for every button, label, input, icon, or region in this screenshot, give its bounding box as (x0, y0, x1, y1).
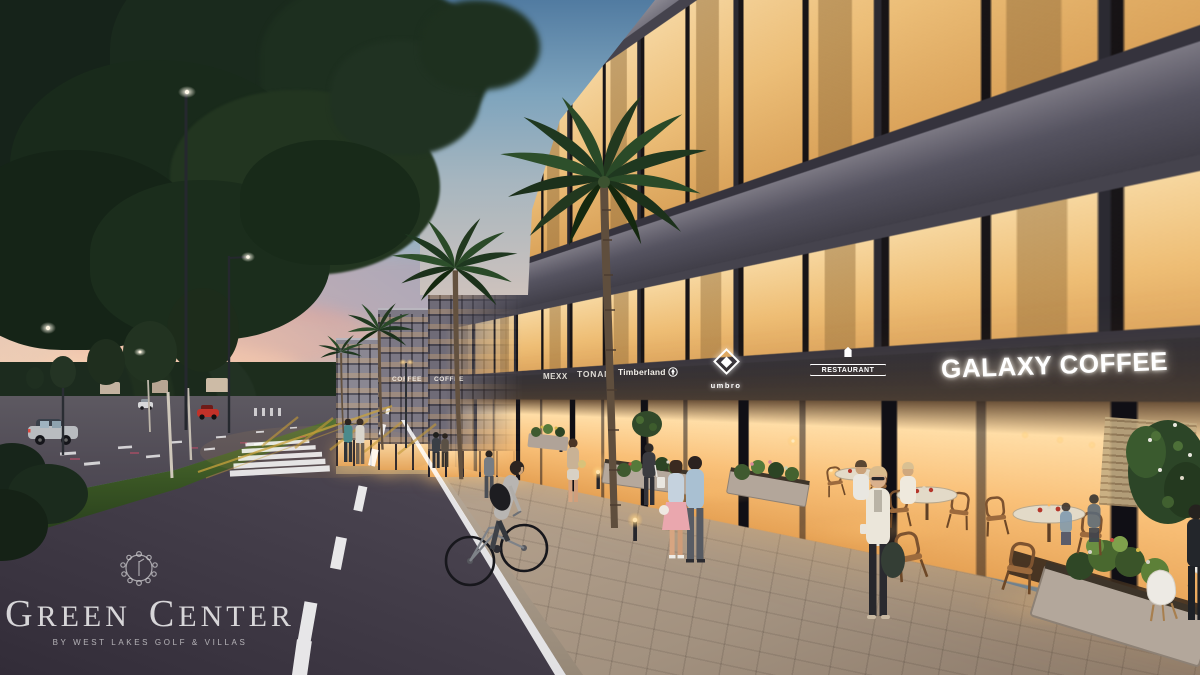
scene-overlay (0, 0, 1200, 675)
flowering-bush (1126, 420, 1200, 524)
silver-car (28, 419, 78, 445)
watermark-brand-right: CENTER (149, 592, 295, 636)
watermark-brand-left: GREEN (5, 592, 131, 636)
white-car (138, 399, 153, 410)
greencenter-emblem-icon (116, 550, 162, 592)
red-car (197, 405, 219, 420)
cafe-table (1013, 504, 1085, 542)
watermark-tagline: BY WEST LAKES GOLF & VILLAS (28, 638, 272, 647)
street-scene: MEXX TONAN Timberland umbro RESTAURANT G… (0, 0, 1200, 675)
median-trees (0, 86, 414, 561)
